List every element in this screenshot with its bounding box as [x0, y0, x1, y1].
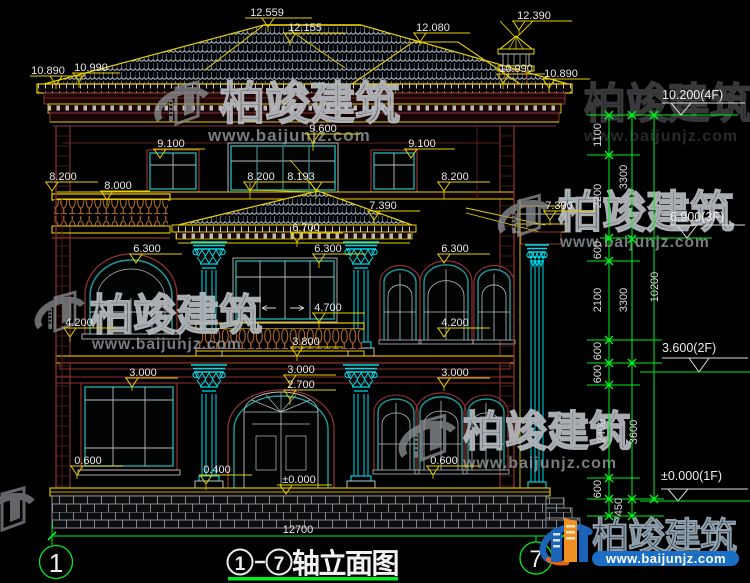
svg-text:6.300: 6.300 [314, 243, 342, 255]
svg-text:轴立面图: 轴立面图 [292, 547, 399, 579]
svg-text:10200: 10200 [649, 272, 661, 303]
svg-text:±0.000: ±0.000 [282, 474, 316, 486]
svg-text:6.900(3F): 6.900(3F) [670, 210, 724, 224]
svg-text:2400: 2400 [596, 419, 608, 443]
svg-text:9.100: 9.100 [408, 138, 436, 150]
svg-text:1100: 1100 [592, 123, 604, 147]
svg-text:3.800: 3.800 [292, 336, 320, 348]
svg-text:3300: 3300 [618, 165, 630, 189]
svg-text:2.700: 2.700 [287, 379, 315, 391]
svg-text:8.200: 8.200 [247, 171, 275, 183]
svg-text:柏竣建筑: 柏竣建筑 [220, 78, 400, 129]
svg-text:www.baijunjz.com: www.baijunjz.com [462, 455, 617, 472]
svg-text:www.baijunjz.com: www.baijunjz.com [583, 128, 738, 145]
svg-text:柏竣建筑: 柏竣建筑 [90, 292, 262, 340]
svg-text:600: 600 [592, 365, 604, 383]
svg-text:10.990: 10.990 [74, 62, 108, 74]
svg-text:0.600: 0.600 [430, 455, 458, 467]
svg-text:4.200: 4.200 [65, 317, 93, 329]
svg-text:10.990: 10.990 [499, 63, 533, 75]
svg-text:4.200: 4.200 [441, 317, 469, 329]
svg-text:3600: 3600 [628, 420, 640, 444]
svg-text:0.600: 0.600 [74, 455, 102, 467]
svg-text:3300: 3300 [618, 288, 630, 312]
svg-text:8.000: 8.000 [104, 180, 132, 192]
svg-text:±0.000(1F): ±0.000(1F) [661, 469, 722, 483]
svg-text:3.000: 3.000 [129, 367, 157, 379]
svg-text:12.559: 12.559 [250, 7, 284, 19]
svg-text:6.700: 6.700 [292, 222, 320, 234]
svg-text:9.600: 9.600 [309, 123, 337, 135]
svg-text:10.200(4F): 10.200(4F) [662, 88, 723, 102]
svg-text:450: 450 [613, 498, 625, 516]
svg-text:0.400: 0.400 [203, 464, 231, 476]
svg-text:10.890: 10.890 [544, 68, 578, 80]
svg-text:10.890: 10.890 [31, 65, 65, 77]
svg-text:600: 600 [592, 342, 604, 360]
svg-text:8.200: 8.200 [441, 171, 469, 183]
svg-text:2100: 2100 [592, 288, 604, 312]
svg-text:600: 600 [592, 241, 604, 259]
svg-text:8.193: 8.193 [287, 171, 315, 183]
svg-text:www.baijunjz.com: www.baijunjz.com [207, 126, 371, 145]
svg-text:1: 1 [235, 554, 246, 575]
svg-text:www.baijunjz.com: www.baijunjz.com [605, 551, 726, 566]
svg-text:7: 7 [274, 554, 285, 575]
svg-text:2200: 2200 [592, 184, 604, 208]
svg-text:9.100: 9.100 [157, 138, 185, 150]
svg-text:6.300: 6.300 [441, 243, 469, 255]
svg-text:1: 1 [49, 548, 63, 578]
svg-text:12.390: 12.390 [517, 10, 551, 22]
svg-text:12.080: 12.080 [416, 22, 450, 34]
svg-text:3.000: 3.000 [287, 364, 315, 376]
svg-text:7.390: 7.390 [369, 200, 397, 212]
svg-text:8.200: 8.200 [49, 171, 77, 183]
svg-text:www.baijunjz.com: www.baijunjz.com [91, 336, 242, 353]
svg-text:12.155: 12.155 [288, 22, 322, 34]
svg-text:4.700: 4.700 [314, 302, 342, 314]
svg-text:3.600(2F): 3.600(2F) [662, 341, 716, 355]
svg-text:12700: 12700 [283, 524, 314, 536]
svg-text:6.300: 6.300 [133, 243, 161, 255]
svg-text:600: 600 [592, 480, 604, 498]
svg-text:7.390: 7.390 [545, 200, 573, 212]
svg-text:3.000: 3.000 [441, 367, 469, 379]
